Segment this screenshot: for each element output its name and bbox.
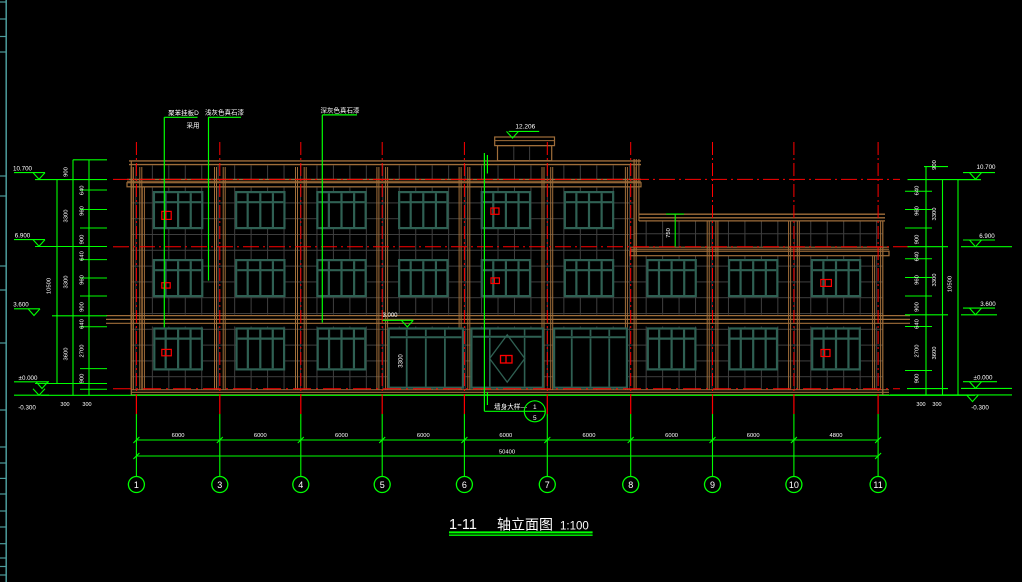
- svg-text:6000: 6000: [335, 433, 348, 439]
- svg-text:900: 900: [64, 167, 70, 177]
- svg-text:900: 900: [915, 302, 921, 312]
- svg-text:900: 900: [80, 302, 86, 312]
- svg-text:11: 11: [873, 480, 882, 490]
- svg-text:±0.000: ±0.000: [19, 375, 38, 382]
- svg-text:3300: 3300: [64, 210, 70, 223]
- svg-text:墙身大样—: 墙身大样—: [494, 402, 527, 411]
- svg-text:900: 900: [915, 374, 921, 384]
- svg-text:750: 750: [666, 228, 672, 238]
- svg-text:聚苯挂板D: 聚苯挂板D: [168, 108, 199, 117]
- svg-text:3.600: 3.600: [13, 302, 29, 309]
- svg-text:5: 5: [380, 480, 385, 490]
- svg-text:10500: 10500: [948, 276, 954, 292]
- svg-text:轴立面图: 轴立面图: [497, 517, 553, 533]
- svg-text:6000: 6000: [172, 433, 185, 439]
- svg-text:300: 300: [916, 402, 925, 408]
- svg-text:300: 300: [932, 402, 941, 408]
- svg-text:8: 8: [628, 480, 633, 490]
- svg-text:1:100: 1:100: [560, 521, 589, 533]
- svg-text:深灰色真石漆: 深灰色真石漆: [321, 106, 361, 115]
- svg-text:6000: 6000: [747, 433, 760, 439]
- svg-text:6000: 6000: [665, 433, 678, 439]
- svg-text:3300: 3300: [399, 354, 405, 368]
- svg-text:300: 300: [82, 402, 91, 408]
- svg-text:4: 4: [298, 480, 303, 490]
- svg-text:3600: 3600: [932, 347, 938, 360]
- svg-text:900: 900: [80, 235, 86, 245]
- svg-text:10: 10: [789, 480, 799, 490]
- svg-text:900: 900: [932, 160, 938, 170]
- svg-text:浅灰色真石漆: 浅灰色真石漆: [205, 108, 245, 117]
- svg-text:-0.300: -0.300: [971, 405, 989, 412]
- svg-text:6.900: 6.900: [979, 233, 995, 240]
- svg-text:7: 7: [545, 480, 550, 490]
- svg-text:3300: 3300: [932, 208, 938, 221]
- svg-text:±0.000: ±0.000: [974, 375, 993, 382]
- svg-text:3.000: 3.000: [382, 313, 398, 319]
- svg-text:采用: 采用: [187, 121, 200, 130]
- svg-text:10.700: 10.700: [977, 164, 996, 171]
- svg-text:50400: 50400: [499, 449, 515, 455]
- svg-text:300: 300: [60, 402, 69, 408]
- svg-text:960: 960: [915, 275, 921, 285]
- svg-text:1: 1: [134, 480, 139, 490]
- svg-text:3600: 3600: [64, 348, 70, 361]
- svg-text:960: 960: [915, 206, 921, 216]
- svg-text:900: 900: [915, 235, 921, 245]
- svg-text:2700: 2700: [80, 345, 86, 358]
- svg-text:1-11: 1-11: [449, 517, 477, 533]
- svg-text:640: 640: [80, 251, 86, 261]
- svg-text:6.900: 6.900: [15, 232, 31, 239]
- svg-text:640: 640: [915, 186, 921, 196]
- svg-text:10.700: 10.700: [13, 165, 32, 172]
- svg-text:3: 3: [217, 480, 222, 490]
- svg-text:960: 960: [80, 275, 86, 285]
- svg-text:3300: 3300: [932, 274, 938, 287]
- svg-text:9: 9: [710, 480, 715, 490]
- svg-text:6000: 6000: [254, 433, 267, 439]
- svg-text:3300: 3300: [64, 276, 70, 289]
- svg-text:640: 640: [915, 252, 921, 262]
- svg-text:6000: 6000: [583, 433, 596, 439]
- svg-text:5: 5: [533, 415, 537, 422]
- svg-text:640: 640: [80, 185, 86, 195]
- svg-text:-0.300: -0.300: [18, 405, 36, 412]
- svg-text:640: 640: [915, 319, 921, 329]
- svg-text:10500: 10500: [47, 278, 53, 294]
- svg-text:960: 960: [80, 206, 86, 216]
- svg-text:12.206: 12.206: [515, 124, 535, 131]
- svg-text:6000: 6000: [417, 433, 430, 439]
- svg-text:900: 900: [80, 374, 86, 384]
- svg-text:6: 6: [462, 480, 467, 490]
- svg-text:4800: 4800: [830, 433, 843, 439]
- svg-text:6000: 6000: [499, 433, 512, 439]
- svg-text:1: 1: [533, 404, 537, 411]
- svg-text:640: 640: [80, 319, 86, 329]
- svg-text:2700: 2700: [915, 345, 921, 358]
- svg-text:3.600: 3.600: [980, 301, 996, 308]
